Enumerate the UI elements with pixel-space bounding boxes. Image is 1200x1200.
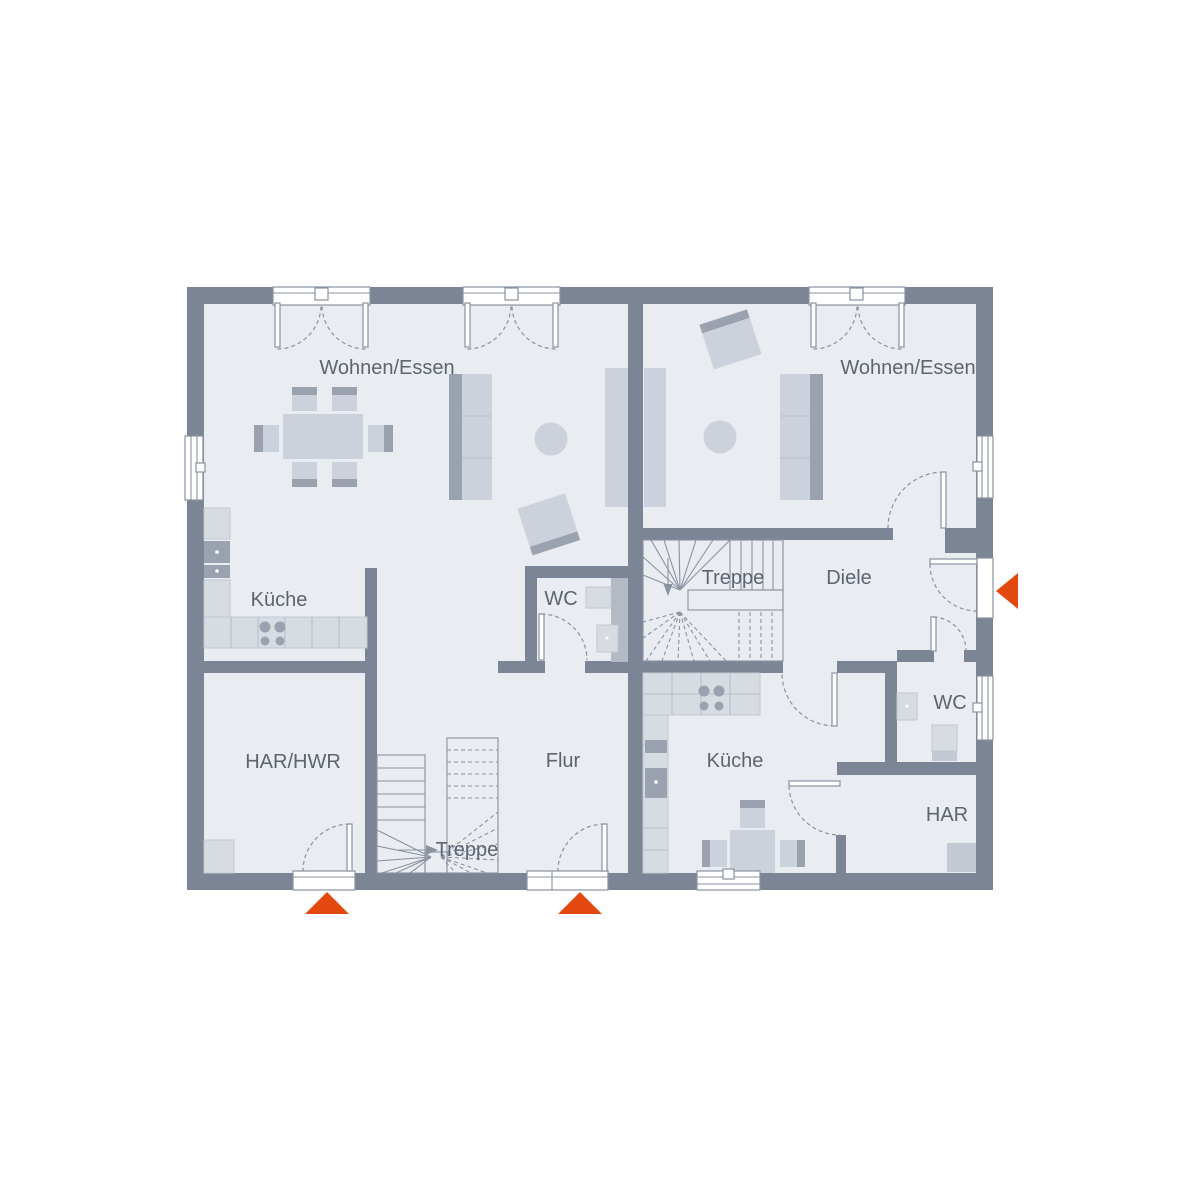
appliance (645, 740, 667, 753)
room-label-left-kitchen: Küche (251, 589, 308, 611)
wall-stair-kitchen (643, 661, 783, 673)
tall-unit-2 (204, 580, 230, 617)
door-handle-icon (315, 288, 328, 300)
entrance-marker-left-icon (305, 892, 349, 914)
wall-wc-left-left-unit (525, 566, 537, 663)
window-left-wall (185, 436, 205, 500)
sofa-seat (780, 374, 810, 500)
kitchen-chair-left (702, 840, 727, 867)
floor-plan: Wohnen/Essen Wohnen/Essen Küche WC HAR/H… (0, 0, 1200, 1200)
door-handle-icon (850, 288, 863, 300)
wall-wc-bottom-b (585, 661, 628, 673)
wall-wc-top-b (964, 650, 976, 662)
dining-chair-bottom-1 (292, 462, 317, 487)
dining-chair-top-2 (332, 387, 357, 411)
sideboard-right (644, 368, 666, 507)
tall-unit (204, 508, 230, 539)
wall-wc-bottom-a (498, 661, 545, 673)
sofa-seat (462, 374, 492, 500)
side-table-left (535, 423, 568, 456)
sofa-left (449, 374, 492, 500)
room-label-left-stairs: Treppe (436, 839, 499, 861)
sink (586, 587, 611, 608)
window-handle-icon (723, 869, 734, 879)
kitchen-chair-top (740, 800, 765, 828)
sofa-right (780, 374, 823, 500)
kitchen-chair-right (780, 840, 805, 867)
sideboard-left (605, 368, 628, 507)
window-handle-icon (973, 703, 982, 712)
wall-pier-entrance (945, 528, 976, 553)
wall-har-stub (836, 835, 846, 873)
room-label-right-stairs: Treppe (702, 567, 765, 589)
room-label-left-wc: WC (544, 588, 577, 610)
entrance-marker-center-icon (558, 892, 602, 914)
wall-left (187, 287, 204, 890)
storage-box-har (947, 843, 976, 872)
window-handle-icon (196, 463, 205, 472)
room-label-left-living: Wohnen/Essen (319, 357, 454, 379)
wall-kitchen-utility (204, 661, 365, 673)
toilet (932, 725, 957, 751)
side-table-right (704, 421, 737, 454)
wall-wc-top-left-unit (525, 566, 628, 578)
wall-central (365, 568, 377, 873)
kitchen-table (730, 830, 775, 873)
room-label-right-kitchen: Küche (707, 750, 764, 772)
wall-living-hall (643, 528, 893, 540)
wall-wc-bottom-right-unit (837, 762, 976, 775)
wall-wc-left-right-unit (885, 661, 897, 762)
wall-wc-top-a (897, 650, 934, 662)
room-label-left-utility: HAR/HWR (245, 751, 341, 773)
utility-tank (204, 840, 234, 873)
floor-plan-canvas: Wohnen/Essen Wohnen/Essen Küche WC HAR/H… (0, 0, 1200, 1200)
sofa-back (810, 374, 823, 500)
party-wall (628, 304, 643, 873)
room-label-right-wc: WC (933, 692, 966, 714)
dining-table (283, 414, 363, 459)
sofa-back (449, 374, 462, 500)
room-label-right-living: Wohnen/Essen (840, 357, 975, 379)
dining-chair-bottom-2 (332, 462, 357, 487)
entrance-marker-right-icon (996, 573, 1018, 609)
room-label-right-entry: Diele (826, 567, 872, 589)
toilet-seat (932, 751, 957, 761)
door-handle-icon (505, 288, 518, 300)
window-handle-icon (973, 462, 982, 471)
window-bottom-kitchen (697, 869, 760, 890)
room-label-right-storage: HAR (926, 804, 968, 826)
room-label-left-hall: Flur (546, 750, 581, 772)
dining-chair-right (368, 425, 393, 452)
dining-chair-left (254, 425, 279, 452)
dining-chair-top-1 (292, 387, 317, 411)
